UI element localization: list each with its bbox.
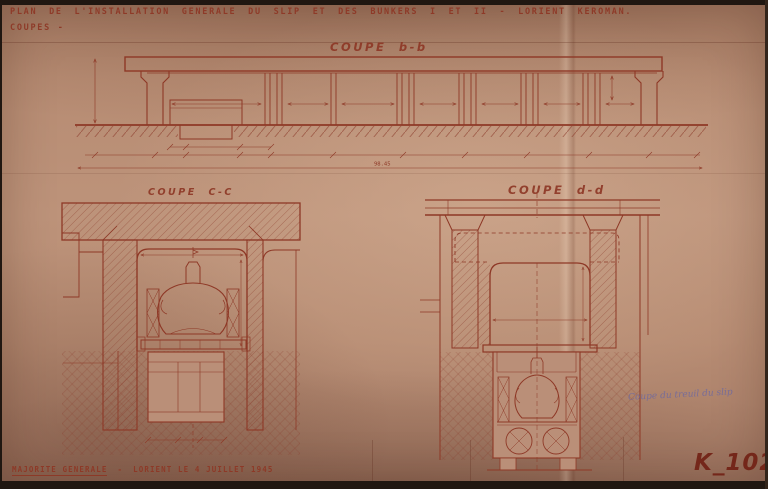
section-cc-label: COUPE C-C — [148, 187, 234, 198]
footer-place-date: LORIENT LE 4 JUILLET 1945 — [133, 465, 273, 474]
photo-edge-bottom — [0, 481, 768, 489]
title-block: MAJORITE GENERALE-LORIENT LE 4 JUILLET 1… — [12, 465, 273, 474]
drawing-subtitle: COUPES - — [10, 23, 65, 33]
section-cc-drawing — [62, 203, 300, 455]
drawing-title: PLAN DE L'INSTALLATION GENERALE DU SLIP … — [10, 7, 632, 17]
photo-edge-left — [0, 0, 2, 489]
drawing-linework: 98.45 — [0, 0, 768, 489]
footer-separator: - — [117, 465, 123, 474]
drawing-reference-number: K_102 — [694, 450, 768, 476]
section-bb-drawing: 98.45 — [75, 57, 708, 168]
overall-dimension-label: 98.45 — [374, 162, 391, 168]
photo-edge-top — [0, 0, 768, 5]
submarine-cc — [137, 247, 250, 351]
columns — [265, 73, 600, 125]
section-dd-label: COUPE d-d — [508, 183, 606, 197]
section-dd-drawing — [420, 193, 660, 470]
section-bb-label: COUPE b-b — [330, 40, 428, 54]
footer-org: MAJORITE GENERALE — [12, 465, 107, 476]
scanned-drawing: 98.45 — [0, 0, 768, 489]
